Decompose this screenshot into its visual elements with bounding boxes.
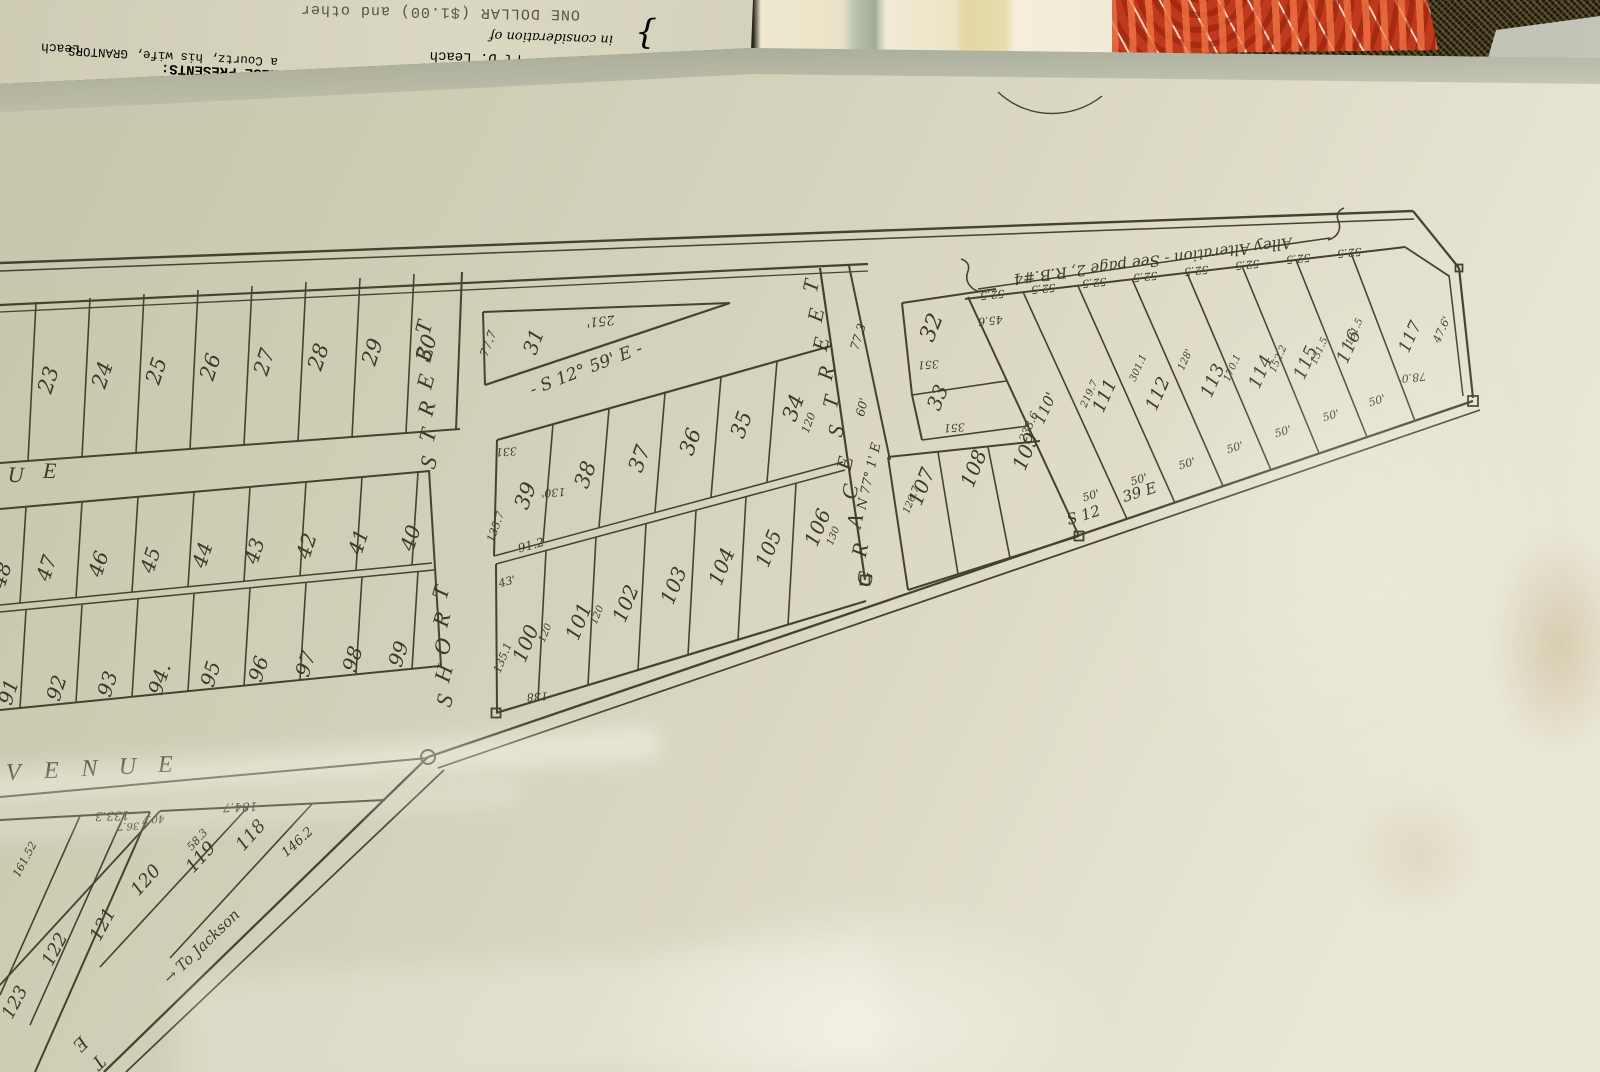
map-line	[20, 610, 26, 708]
plat-map-svg: STREETSHORTGRACESTREETUEVENUEET- S 12° 5…	[0, 0, 1600, 1072]
map-line	[170, 804, 312, 958]
map-line	[428, 401, 1473, 757]
map-street-letter: E	[43, 758, 60, 784]
map-label: 102	[607, 581, 644, 625]
map-street-letter: H	[429, 661, 458, 686]
map-label: 50'	[1367, 392, 1387, 409]
map-label: 47	[31, 552, 62, 585]
map-line	[0, 271, 868, 312]
map-label: 40.7	[141, 813, 165, 825]
map-label: 301.1	[1128, 353, 1150, 384]
map-label: 36	[675, 425, 707, 458]
map-label: - S 12° 59' E -	[527, 339, 646, 400]
map-label: 52.5	[1286, 251, 1312, 266]
map-street-letter: T	[86, 1050, 111, 1072]
map-label: 50'	[1081, 487, 1101, 504]
map-label: 25	[140, 354, 171, 388]
map-line	[300, 482, 306, 576]
map-label: → To Jackson	[160, 906, 244, 988]
map-label: 112	[1141, 374, 1174, 414]
map-street-letter: S	[431, 691, 458, 710]
map-street-letter: E	[157, 752, 174, 778]
map-label: 52.5	[1082, 275, 1108, 290]
map-street-letter: T	[797, 276, 824, 295]
map-line	[543, 424, 553, 543]
map-street-letter: O	[428, 634, 457, 657]
map-line	[912, 395, 922, 440]
map-line	[738, 497, 746, 640]
map-label: 45.6	[978, 313, 1005, 329]
map-label: 95	[195, 658, 226, 690]
map-line	[132, 497, 138, 592]
map-line	[0, 471, 430, 509]
map-line	[1405, 247, 1449, 276]
map-label: 38	[570, 458, 602, 491]
map-label: 105	[750, 526, 787, 570]
map-line	[20, 507, 26, 603]
map-label: 31	[518, 326, 549, 358]
map-line	[483, 303, 730, 312]
map-label: 128'	[1176, 348, 1195, 372]
map-street-letter: T	[427, 581, 455, 602]
map-line	[711, 377, 721, 497]
map-path	[961, 259, 980, 292]
map-label: 104	[703, 544, 740, 588]
map-line	[0, 429, 460, 463]
map-street-letter: S	[415, 453, 442, 472]
map-label: 135.7	[484, 510, 507, 544]
map-street-letter: R	[427, 609, 455, 631]
map-label: 117	[1395, 318, 1427, 356]
map-line	[788, 483, 796, 625]
map-street-letter: E	[68, 1031, 94, 1057]
map-label: 47.6'	[1430, 314, 1453, 345]
map-line	[496, 564, 497, 713]
deed-line-dollar: ONE DOLLAR ($1.00) and other	[150, 0, 580, 23]
map-label: 42	[291, 530, 322, 563]
map-line	[902, 303, 912, 395]
map-label: 103	[655, 563, 692, 607]
map-line	[104, 757, 428, 1072]
map-street-letter: G	[851, 568, 879, 590]
map-street-letter: R	[812, 363, 840, 383]
deed-brace: }	[635, 14, 657, 54]
map-label: 52.5	[1337, 245, 1363, 260]
map-street-letter: E	[42, 458, 58, 484]
map-street-letter: S	[822, 422, 849, 439]
map-line	[456, 272, 462, 430]
map-label: 27	[248, 345, 280, 379]
map-label: 161.52	[10, 839, 40, 879]
map-label: 30	[411, 331, 442, 364]
map-line	[496, 601, 866, 713]
map-label: 37	[624, 441, 656, 475]
map-street-letter: R	[412, 398, 440, 420]
map-label: 118	[232, 816, 271, 856]
map-street-letter: E	[411, 371, 439, 393]
map-label: 60'	[853, 396, 871, 417]
map-line	[188, 492, 194, 587]
map-label: 98	[337, 643, 368, 675]
map-label: 40	[395, 522, 426, 555]
map-label: 351	[917, 357, 939, 371]
map-street-letter: U	[7, 462, 26, 488]
map-label: 43	[239, 535, 270, 568]
map-line	[922, 426, 1028, 440]
map-label: 96	[243, 653, 274, 685]
map-line	[76, 502, 82, 598]
map-label: 46	[83, 548, 114, 581]
map-label: 45	[135, 544, 166, 577]
map-street-letter: R	[846, 540, 874, 560]
deed-line-consideration: in consideration of	[448, 26, 613, 47]
map-label: 122	[38, 929, 73, 969]
map-label: 93	[92, 668, 123, 700]
map-label: 48	[0, 559, 17, 592]
map-label: 33	[922, 381, 954, 414]
map-line	[0, 264, 868, 305]
map-label: 35	[726, 408, 758, 441]
map-line	[0, 570, 434, 612]
map-line	[849, 266, 890, 460]
map-line	[908, 536, 1079, 590]
map-street-letter: N	[80, 756, 99, 782]
map-label: 92	[41, 672, 72, 704]
map-label: 121	[86, 904, 121, 944]
map-label: 26	[194, 350, 225, 384]
photo-canvas: ONE DOLLAR ($1.00) and other in consider…	[0, 0, 1600, 1072]
map-label: 41	[343, 526, 374, 559]
map-label: 99	[383, 638, 414, 670]
map-label: 100	[507, 621, 544, 666]
map-label: 52.5	[1133, 269, 1159, 284]
map-label: S 12	[1065, 502, 1103, 529]
map-label: 120	[127, 861, 166, 901]
map-label: 39	[510, 479, 542, 512]
map-label: 138	[526, 689, 548, 703]
map-label: 32	[915, 310, 949, 345]
map-label: 78.0'	[1398, 370, 1427, 386]
map-label: N 77° 1' E	[854, 441, 884, 512]
map-line	[412, 571, 418, 669]
map-line	[938, 452, 958, 574]
map-line	[968, 297, 1079, 536]
map-line	[688, 510, 696, 655]
map-label: 43'	[496, 573, 517, 590]
map-sheet: STREETSHORTGRACESTREETUEVENUEET- S 12° 5…	[0, 0, 1600, 1072]
map-label: 108	[955, 446, 992, 490]
map-label: 130'	[541, 485, 566, 500]
map-label: 50'	[1225, 439, 1245, 456]
map-label: 251'	[585, 311, 616, 329]
map-street-letter: V	[6, 760, 23, 786]
map-street-letter: E	[831, 453, 859, 473]
map-label: 24	[86, 358, 117, 392]
map-street-letter: T	[817, 392, 844, 411]
map-line	[244, 487, 250, 581]
map-label: 50'	[1177, 455, 1197, 472]
map-line	[0, 563, 432, 605]
map-line	[76, 605, 82, 702]
map-line	[0, 758, 428, 797]
map-line	[655, 393, 665, 512]
map-street-letter: T	[414, 424, 442, 445]
map-label: 351	[943, 420, 965, 434]
map-label: 123	[0, 982, 32, 1022]
map-line	[767, 361, 777, 482]
map-line	[132, 599, 138, 697]
map-label: 77.7	[477, 328, 499, 358]
map-label: 146.2	[279, 824, 317, 860]
map-label: 120	[537, 622, 555, 644]
map-line	[188, 594, 194, 691]
map-label: 331	[495, 444, 517, 458]
map-label: 184.7	[222, 799, 257, 814]
map-street-letter: A	[841, 511, 869, 532]
map-label: 28	[302, 340, 333, 374]
map-label: 29	[356, 335, 387, 369]
map-label: 50'	[1273, 423, 1293, 440]
map-label: 52.5	[980, 287, 1006, 302]
map-line	[0, 816, 80, 995]
map-label: 52.5	[1184, 263, 1210, 278]
map-label: 23	[32, 363, 63, 397]
map-label: 52.5	[1031, 281, 1057, 296]
map-line	[160, 800, 385, 811]
map-label: 50'	[1321, 407, 1341, 424]
map-label: 97	[290, 648, 321, 680]
map-line	[1413, 211, 1459, 268]
map-label: 36.7	[116, 820, 139, 832]
map-label: 52.5	[1235, 257, 1261, 272]
map-line	[0, 811, 160, 985]
map-line	[126, 770, 444, 1072]
map-line	[888, 457, 908, 590]
map-path	[998, 92, 1102, 114]
map-street-letter: U	[118, 754, 137, 780]
